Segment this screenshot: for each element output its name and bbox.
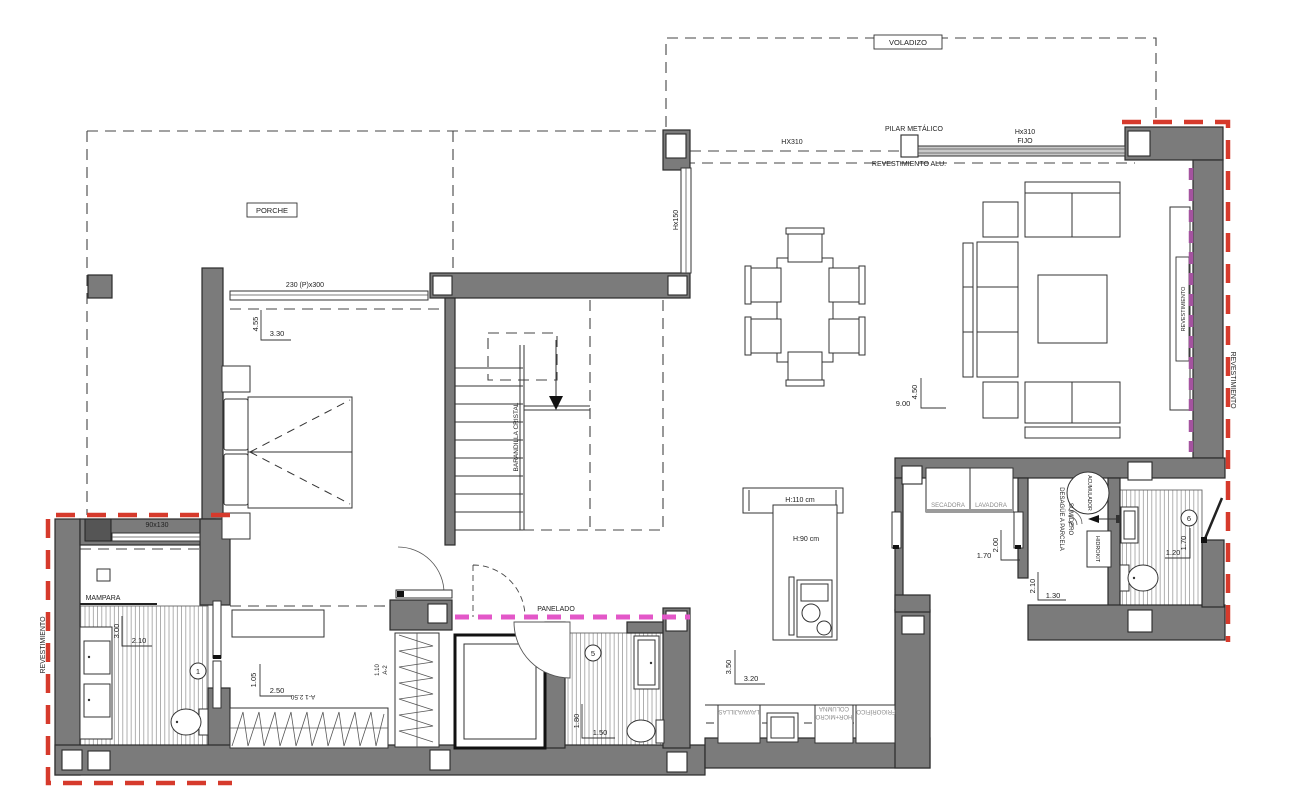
sliding-door-suite: [213, 601, 221, 708]
armchair: [983, 382, 1018, 418]
dim-living: 4.50 9.00: [896, 378, 946, 408]
stair-glass-balustrade: [520, 345, 590, 530]
nightstand: [222, 366, 250, 392]
svg-text:2.10: 2.10: [132, 636, 147, 645]
svg-text:4.55: 4.55: [251, 317, 260, 332]
svg-text:3.00: 3.00: [112, 624, 121, 639]
door-swing-dashed: [473, 565, 525, 617]
bedroom-bed: [222, 366, 352, 539]
floor-plan-canvas: BARANDILLA CRISTAL: [0, 0, 1296, 795]
dim-dressing: 1.05 2.50: [249, 664, 292, 696]
wall-right: [1193, 160, 1223, 458]
hidrokit-label: HIDROKIT: [1094, 536, 1100, 563]
drain-arrow-icon: [1088, 515, 1121, 523]
sink: [84, 684, 110, 717]
hx310-label: HX310: [781, 139, 803, 146]
dim-tech: 2.10 1.30: [1028, 572, 1066, 600]
hor-micro-label: HOR+MICRO: [815, 713, 852, 719]
stair-landing-dashed: [488, 333, 557, 380]
wardrobe-right: [395, 633, 439, 747]
wall-laundry-corner: [895, 595, 930, 612]
svg-text:4.50: 4.50: [910, 385, 919, 400]
svg-text:9.00: 9.00: [896, 399, 911, 408]
wall-bedroom-left: [202, 268, 223, 545]
svg-text:1.30: 1.30: [1046, 591, 1061, 600]
stair-void-outline: [523, 300, 663, 530]
window-hx150: [681, 168, 691, 273]
column: [428, 604, 447, 623]
svg-text:1.20: 1.20: [1166, 548, 1181, 557]
revestimiento-tv-label: REVESTIMIENTO: [1181, 286, 1187, 332]
sumidero-label: SUMIDERO: [1067, 503, 1073, 536]
room-number-1: 1: [196, 667, 200, 676]
pillow: [224, 454, 248, 505]
suite-corner-column: [85, 519, 111, 541]
column: [1128, 610, 1152, 632]
svg-text:3.30: 3.30: [270, 329, 285, 338]
dim-porch: 4.55 3.30: [251, 310, 291, 340]
tv-media-wall: REVESTIMIENTO: [1170, 207, 1190, 410]
column: [667, 752, 687, 772]
room-number-5: 5: [591, 649, 595, 658]
wall-stair-top: [430, 273, 690, 298]
wall-bath5-top: [627, 622, 667, 633]
staircase: BARANDILLA CRISTAL: [455, 340, 590, 530]
svg-text:1.05: 1.05: [249, 673, 258, 688]
toilet: [171, 709, 208, 735]
window-hx310-fijo: [918, 146, 1125, 156]
laundry-counter-strip: [926, 509, 1013, 513]
coffee-table: [1038, 275, 1107, 343]
area-labels: VOLADIZO PORCHE: [247, 35, 942, 217]
door-swing-arc: [398, 547, 444, 593]
column: [668, 276, 687, 295]
svg-text:2.10: 2.10: [1028, 579, 1037, 594]
dining-set: [745, 228, 865, 386]
h110-label: H:110 cm: [785, 497, 815, 504]
kitchen: LAVAVAJILLAS COLUMNA HOR+MICRO FRIGORÍFI…: [705, 488, 896, 743]
panelado-label: PANELADO: [537, 606, 575, 613]
floor-drain: [97, 569, 110, 581]
columna-label: COLUMNA: [819, 705, 849, 711]
toilet: [1120, 565, 1158, 591]
column: [433, 276, 452, 295]
svg-text:2.00: 2.00: [991, 538, 1000, 553]
revestimiento-left-label: REVESTIMIENTO: [40, 616, 47, 674]
svg-text:1.70: 1.70: [1179, 536, 1188, 551]
wardrobe-bottom: [230, 708, 388, 748]
column: [62, 750, 82, 770]
column: [88, 751, 110, 770]
column-pilar-metalico: [901, 135, 918, 157]
barandilla-cristal-label: BARANDILLA CRISTAL: [513, 402, 520, 471]
dim-kitchen: 3.50 3.20: [724, 650, 765, 684]
revestimiento-right-label: REVESTIMIENTO: [1229, 351, 1236, 409]
svg-text:3.20: 3.20: [744, 674, 759, 683]
sliding-door-hall: [396, 590, 452, 598]
a2-wardrobe-label: A-2: [383, 665, 389, 675]
svg-text:1.50: 1.50: [593, 728, 608, 737]
porch-pillar: [88, 275, 112, 298]
living-room-sofas: [963, 182, 1120, 438]
pillow: [224, 399, 248, 450]
window-230-label: 230 (P)x300: [286, 282, 324, 289]
wall-suite-left: [55, 519, 80, 775]
column: [666, 134, 686, 158]
wall-bath6-right: [1202, 540, 1224, 607]
mampara-label: MAMPARA: [86, 595, 121, 602]
svg-text:1.70: 1.70: [977, 551, 992, 560]
sink: [638, 640, 655, 685]
laundry-door-panels: [892, 512, 1023, 549]
svg-text:2.50: 2.50: [270, 686, 285, 695]
wall-utility-bottom: [1028, 605, 1225, 640]
revestimiento-alu-label: REVESTIMIENTO ALU.: [872, 161, 946, 168]
voladizo-label: VOLADIZO: [889, 38, 927, 47]
hx150-label: Hx150: [673, 210, 680, 230]
toilet: [627, 720, 664, 743]
lavadora-label: LAVADORA: [975, 503, 1007, 509]
wall-bottom: [55, 745, 705, 775]
door-bath6: [1201, 498, 1222, 543]
window-90x130: [112, 533, 200, 541]
cooktop: [797, 580, 832, 637]
lavavajillas-label: LAVAVAJILLAS: [719, 708, 760, 714]
column: [902, 616, 924, 634]
dresser: [232, 610, 324, 637]
pilar-metalico-label: PILAR METÁLICO: [885, 124, 944, 133]
sink: [84, 641, 110, 674]
hx310-fijo-label-2: FIJO: [1017, 138, 1033, 145]
dining-table: [777, 258, 833, 362]
acumulador-label: ACUMULADOR: [1086, 475, 1092, 511]
svg-text:3.50: 3.50: [724, 660, 733, 675]
column: [1128, 462, 1152, 480]
dressing-room: [230, 610, 439, 748]
window-230x300: [230, 291, 428, 300]
column: [902, 466, 922, 484]
secadora-label: SECADORA: [931, 503, 965, 509]
stair-direction-arrow: [549, 340, 563, 410]
svg-text:1.80: 1.80: [572, 714, 581, 729]
window-90-label: 90x130: [146, 522, 169, 529]
floor-plan-page: BARANDILLA CRISTAL: [0, 0, 1296, 795]
a2-dim-label: 1.10: [375, 664, 381, 676]
column: [1128, 131, 1150, 156]
room-number-6: 6: [1187, 514, 1191, 523]
column: [430, 750, 450, 770]
desague-label: DESAGÜE A PARCELA: [1058, 487, 1065, 551]
column: [666, 611, 687, 631]
wall-stair-left: [445, 298, 455, 545]
porche-label: PORCHE: [256, 206, 288, 215]
hx310-fijo-label-1: Hx310: [1015, 129, 1035, 136]
h90-label: H:90 cm: [793, 536, 819, 543]
armchair: [983, 202, 1018, 237]
a1-wardrobe-label: A-1 2.50: [290, 693, 315, 700]
frigorifico-label: FRIGORÍFICO: [856, 708, 896, 715]
